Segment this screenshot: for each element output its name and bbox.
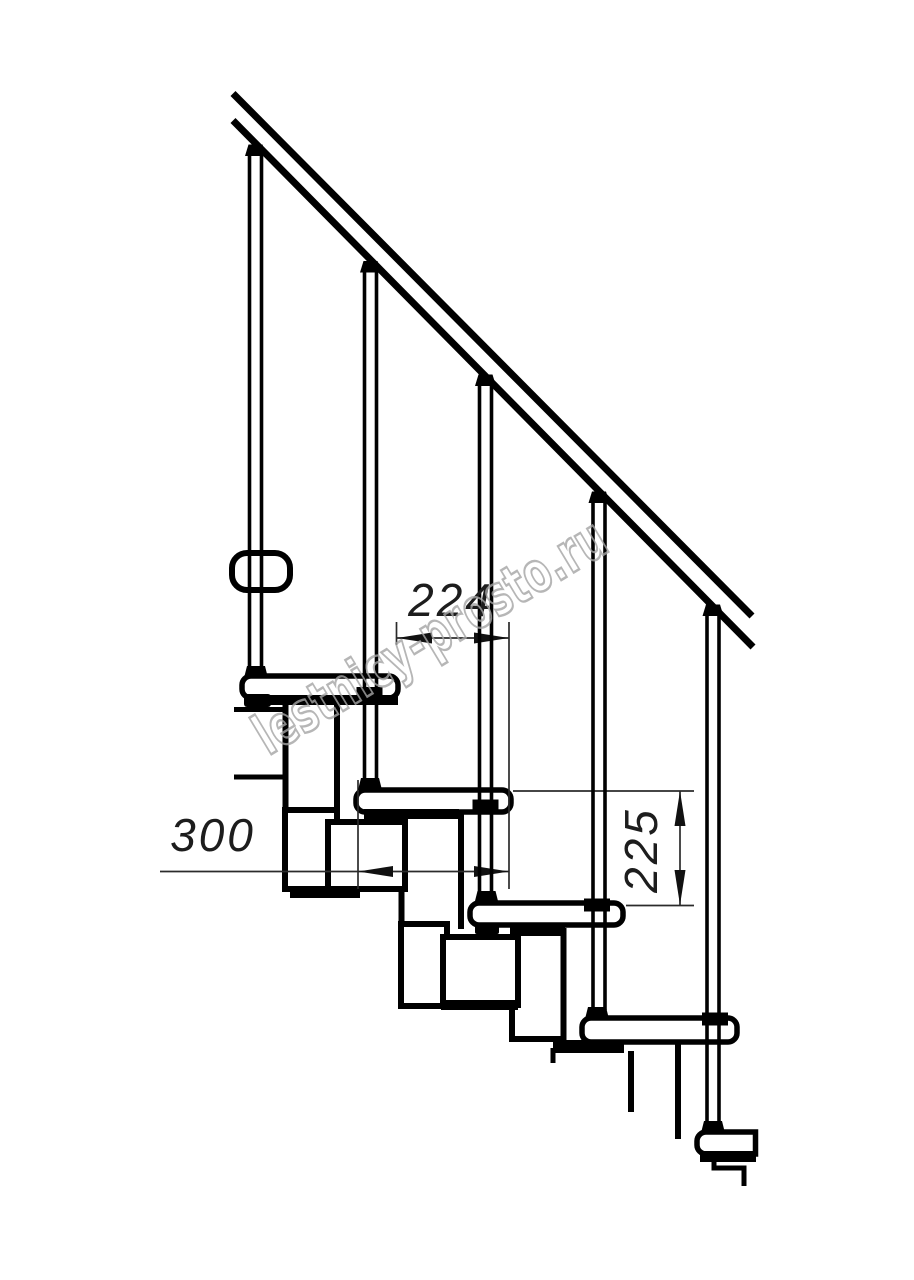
module-box-2 (328, 822, 405, 889)
staircase-drawing-page: 224 300 225 lestnicy-prosto.ru (0, 0, 914, 1280)
dimension-tread-depth: 300 (163, 812, 263, 858)
module-l-contour (512, 1007, 561, 1039)
bottom-module-contour (714, 1160, 744, 1186)
module-box-3-inner (443, 937, 518, 1005)
support-structure (234, 701, 744, 1186)
dimension-riser-height: 225 (618, 800, 664, 900)
tread-5 (697, 1132, 756, 1154)
